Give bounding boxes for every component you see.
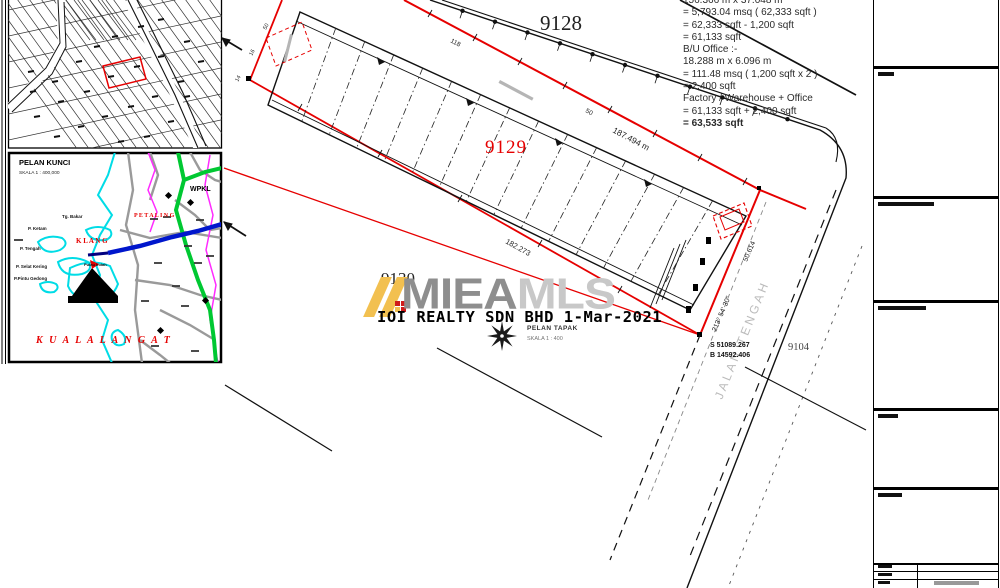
dim-nw-16: 16 (248, 49, 256, 57)
titleblock-table-label (878, 565, 892, 568)
keymap-label-kuala-langat: K U A L A L A N G A T (35, 335, 172, 346)
coord-line1: S 51089.267 (710, 342, 750, 349)
column-grid-lines (302, 28, 713, 294)
substation-box (720, 209, 744, 230)
keymap-label-petaling: P E T A L I N G (134, 213, 175, 219)
loading-bays (686, 237, 711, 313)
titleblock-table-divider (917, 563, 918, 588)
dim-nw-14: 14 (234, 75, 242, 83)
calc-line: Factory / Warehouse + Office (683, 93, 817, 105)
place-label: P. Ketam (28, 226, 47, 231)
plan-caption: PELAN TAPAK SKALA 1 : 400 (527, 325, 578, 342)
lot-9104-boundary (745, 367, 866, 430)
calc-line: = 2,400 sqft (683, 81, 817, 93)
keymap-scale: SKALA 1 : 400,000 (19, 170, 60, 176)
building-outline (268, 12, 746, 310)
place-label: P.Pintu Gedong (14, 276, 47, 281)
calc-line: = 62,333 sqft - 1,200 sqft (683, 20, 817, 32)
calc-line: 156.366 m x 37.048 m (683, 0, 817, 7)
watermark-caption: IOI REALTY SDN BHD 1-Mar-2021 (377, 308, 662, 326)
building-inner-lines (272, 21, 742, 305)
keymap-label-wpkl: WPKL (190, 186, 211, 193)
survey-plan-sheet: { "measurements": { "lines": [ "156.366 … (0, 0, 1000, 588)
area-calculation-block: 156.366 m x 37.048 m = 5,793.04 msq ( 62… (683, 0, 817, 130)
calc-line: = 61,133 sqft + 2,400 sqft (683, 106, 817, 118)
inset-leader-arrows (222, 38, 246, 236)
titleblock-field-label (878, 493, 902, 497)
titleblock-field-label (878, 72, 894, 76)
road-name-smudge2 (283, 34, 293, 62)
dim-bearing-dist: 50.614 (742, 240, 757, 263)
road-name-smudge (498, 80, 533, 101)
office-walls (650, 240, 686, 308)
titleblock-divider (874, 487, 998, 490)
titleblock-divider (874, 196, 998, 199)
calc-line: = 61,133 sqft (683, 32, 817, 44)
keymap-site-bar (68, 296, 118, 303)
place-label: P. Tengah (20, 246, 41, 251)
lot-label-9104: 9104 (788, 342, 810, 353)
dim-tick-118: 118 (449, 38, 462, 49)
page-border-left (2, 0, 6, 364)
titleblock-field-label (878, 202, 934, 206)
titleblock-field-label (878, 414, 898, 418)
dim-bottom-length: 182.273 (504, 237, 532, 258)
dim-tick-50: 50 (584, 108, 594, 118)
place-label: Tg. Bakar (62, 214, 83, 219)
south-road-lines (225, 348, 602, 451)
calc-line: = 111.48 msq ( 1,200 sqft x 2 ) (683, 69, 817, 81)
keymap-river-blue (88, 253, 108, 255)
titleblock-divider (874, 408, 998, 411)
calc-line-total: = 63,533 sqft (683, 118, 817, 130)
keymap-label-klang: K L A N G (76, 237, 108, 245)
titleblock-table-label (878, 573, 892, 576)
titleblock-divider (874, 66, 998, 69)
plan-caption-scale: SKALA 1 : 400 (527, 336, 563, 342)
title-block (873, 0, 999, 588)
titleblock-divider (874, 300, 998, 303)
plan-caption-title: PELAN TAPAK (527, 325, 578, 332)
calc-line: = 5,793.04 msq ( 62,333 sqft ) (683, 7, 817, 19)
keymap-title: PELAN KUNCI (19, 158, 70, 167)
place-label: Pulau Indah (84, 262, 107, 267)
coord-line2: B 14592.406 (710, 352, 750, 359)
calc-line: 18.288 m x 6.096 m (683, 56, 817, 68)
calc-line: B/U Office :- (683, 44, 817, 56)
titleblock-field-label (878, 306, 926, 310)
lot-label-9128: 9128 (540, 11, 582, 35)
titleblock-table-label (878, 581, 890, 584)
titleblock-date-value (934, 581, 979, 585)
road-dashed-edge (610, 335, 700, 560)
road-center-dashed (690, 190, 836, 556)
road-corner-curve (826, 128, 838, 162)
road-name-jalan-tengah: JALAN TENGAH (712, 279, 772, 402)
lot-label-9129: 9129 (485, 137, 527, 158)
place-label: P. Selat Kering (16, 264, 47, 269)
